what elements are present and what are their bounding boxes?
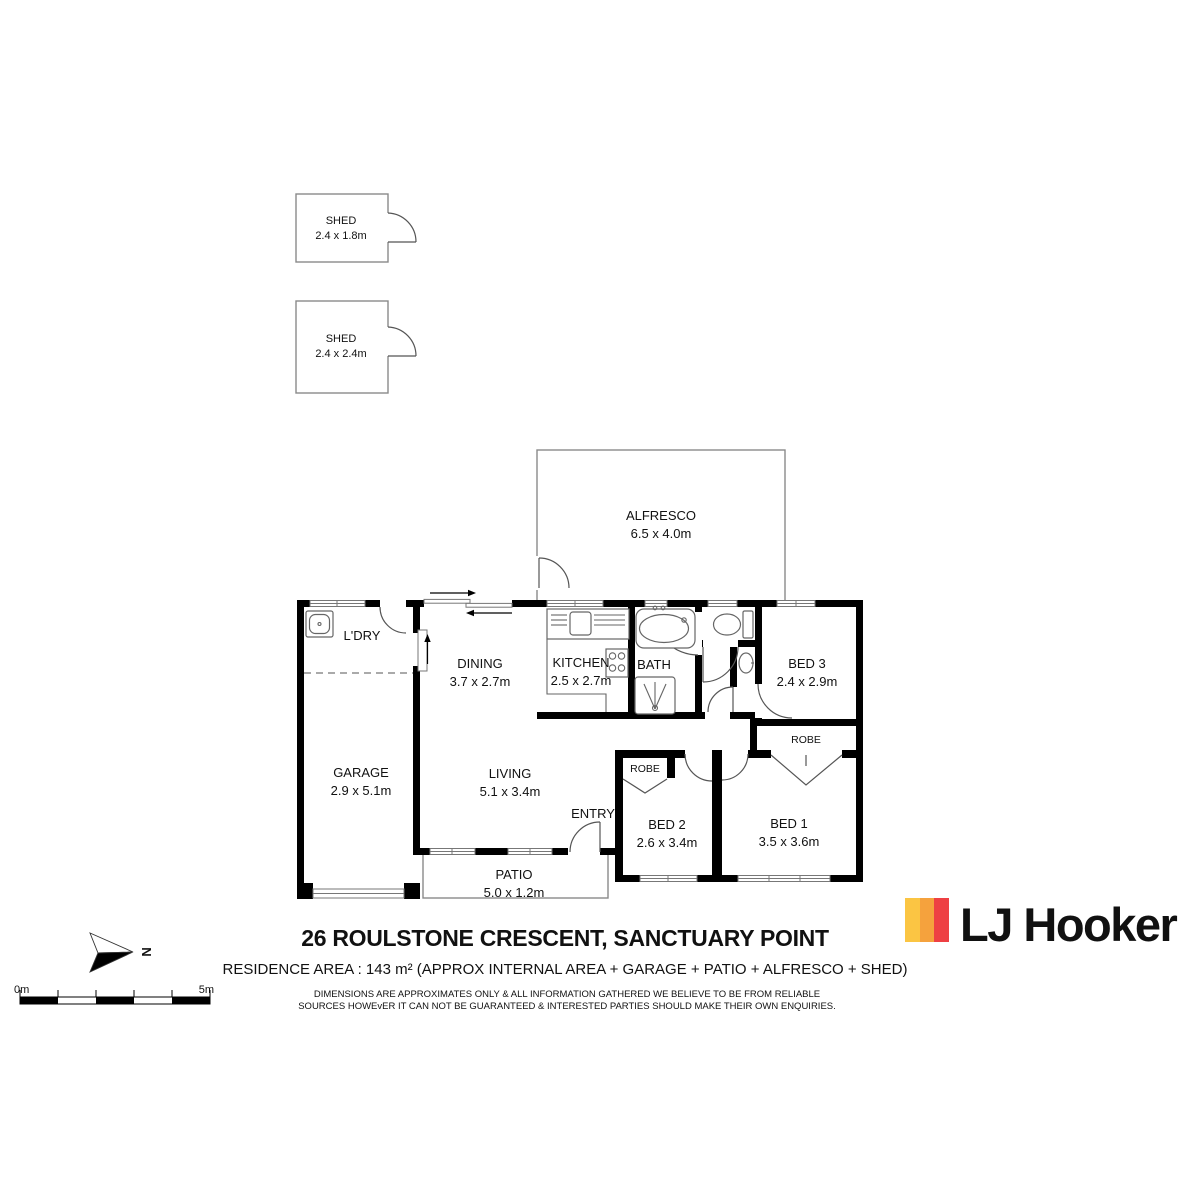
shower-icon <box>635 677 675 714</box>
bed3-label: BED 3 <box>788 656 826 671</box>
patio-label: PATIO <box>495 867 532 882</box>
scale-start-label: 0m <box>14 984 29 996</box>
window-wc <box>708 601 737 607</box>
bathtub-icon <box>636 606 695 648</box>
kitchen-sink-icon <box>547 609 629 639</box>
window-living-1 <box>430 849 475 855</box>
living-label: LIVING <box>489 766 532 781</box>
logo-stripes-icon <box>905 898 949 942</box>
logo-text: LJ Hooker <box>960 898 1178 951</box>
entry-label: ENTRY <box>571 806 615 821</box>
scale-end-label: 5m <box>199 984 214 996</box>
window-living-2 <box>508 849 552 855</box>
kitchen-dims: 2.5 x 2.7m <box>551 673 612 688</box>
floorplan-canvas: SHED 2.4 x 1.8m SHED 2.4 x 2.4m ALFRESCO… <box>0 0 1200 1200</box>
residence-area-line: RESIDENCE AREA : 143 m² (APPROX INTERNAL… <box>223 961 908 978</box>
bed2-dims: 2.6 x 3.4m <box>637 835 698 850</box>
disclaimer-line-1: DIMENSIONS ARE APPROXIMATES ONLY & ALL I… <box>314 989 820 1000</box>
disclaimer-line-2: SOURCES HOWEvER IT CAN NOT BE GUARANTEED… <box>298 1001 836 1012</box>
living-dims: 5.1 x 3.4m <box>480 784 541 799</box>
window-bed3 <box>777 601 815 607</box>
window-bed2 <box>640 876 697 882</box>
bath-label: BATH <box>637 657 671 672</box>
dining-label: DINING <box>457 656 503 671</box>
laundry-label: L'DRY <box>344 628 381 643</box>
address-title: 26 ROULSTONE CRESCENT, SANCTUARY POINT <box>301 925 829 951</box>
title-block: 26 ROULSTONE CRESCENT, SANCTUARY POINT R… <box>223 925 908 1012</box>
window-bath <box>645 601 667 607</box>
bed1-dims: 3.5 x 3.6m <box>759 834 820 849</box>
bed2-label: BED 2 <box>648 817 686 832</box>
shed-small-label: SHED <box>326 215 357 227</box>
garage-label: GARAGE <box>333 765 389 780</box>
dining-dims: 3.7 x 2.7m <box>450 674 511 689</box>
window-bed1 <box>738 876 830 882</box>
shed-large-label: SHED <box>326 333 357 345</box>
garage-dims: 2.9 x 5.1m <box>331 783 392 798</box>
laundry-tub-icon <box>306 611 333 637</box>
patio-dims: 5.0 x 1.2m <box>484 885 545 900</box>
window-laundry <box>310 601 365 607</box>
shed-small-dims: 2.4 x 1.8m <box>315 230 366 242</box>
robe-bed2-label: ROBE <box>630 763 660 775</box>
robe-bed1-label: ROBE <box>791 734 821 746</box>
alfresco-dims: 6.5 x 4.0m <box>631 526 692 541</box>
kitchen-label: KITCHEN <box>552 655 609 670</box>
shed-large-dims: 2.4 x 2.4m <box>315 348 366 360</box>
bed1-label: BED 1 <box>770 816 808 831</box>
bed3-dims: 2.4 x 2.9m <box>777 674 838 689</box>
alfresco-label: ALFRESCO <box>626 508 696 523</box>
garage-door <box>313 889 404 898</box>
north-label: N <box>139 947 154 956</box>
floorplan-page: SHED 2.4 x 1.8m SHED 2.4 x 2.4m ALFRESCO… <box>0 0 1200 1200</box>
window-kitchen <box>547 601 603 607</box>
